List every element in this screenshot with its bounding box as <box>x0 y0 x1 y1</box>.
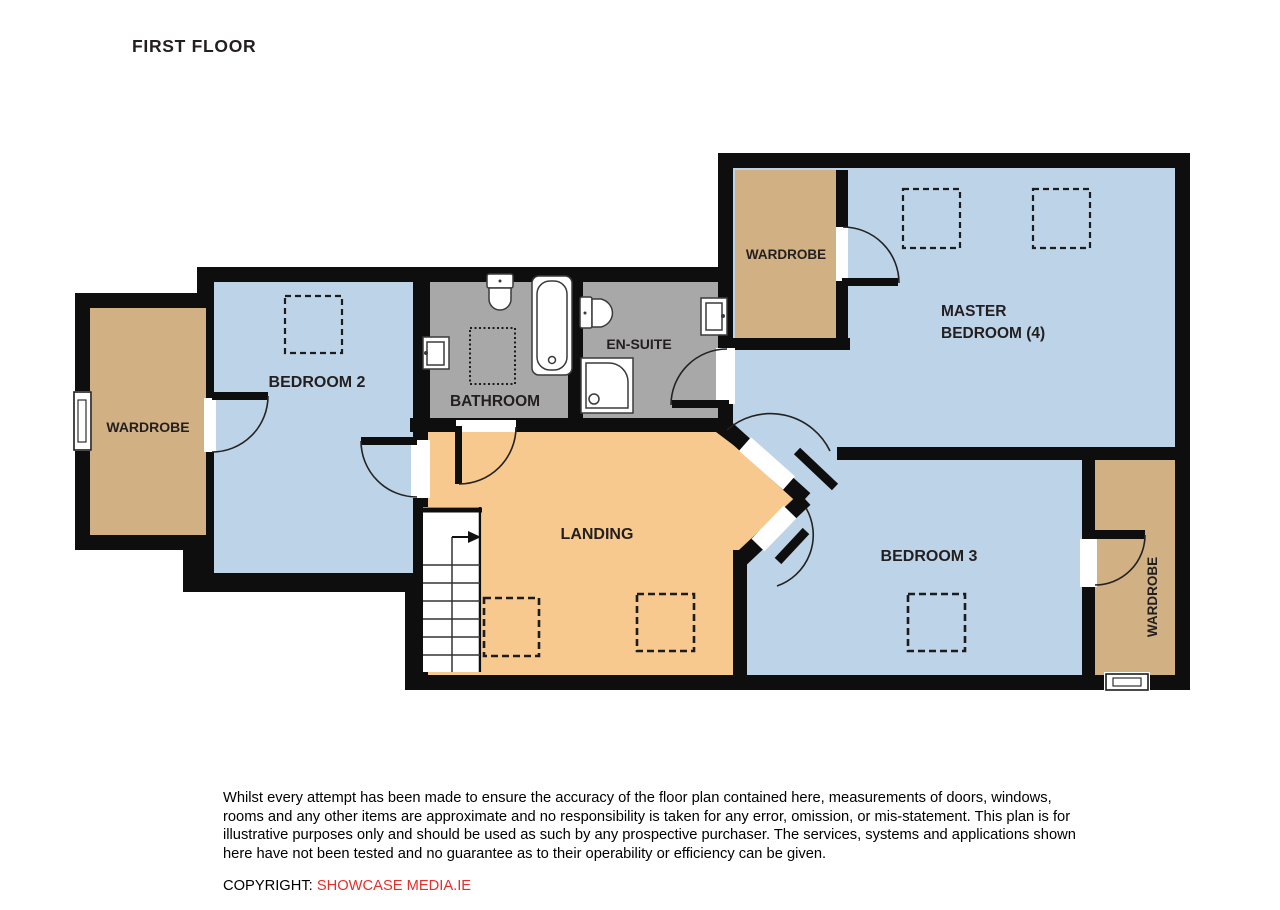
disclaimer-line: rooms and any other items are approximat… <box>223 808 1083 827</box>
copyright-prefix: COPYRIGHT: <box>223 878 317 894</box>
sink-icon <box>427 342 444 365</box>
floor-plan: WARDROBE BEDROOM 2 BATHROOM EN-SUITE WAR… <box>0 0 1280 905</box>
sink-icon <box>706 303 722 330</box>
toilet-icon <box>489 288 511 310</box>
wardrobe-left-label: WARDROBE <box>106 419 189 435</box>
window-icon <box>1113 678 1141 686</box>
disclaimer-line: here have not been tested and no guarant… <box>223 845 1083 864</box>
shower-drain <box>589 394 599 404</box>
floor-plan-svg: WARDROBE BEDROOM 2 BATHROOM EN-SUITE WAR… <box>0 0 1280 905</box>
wardrobe-right-label: WARDROBE <box>1145 557 1160 637</box>
master-bedroom-label-line2: BEDROOM (4) <box>941 325 1045 342</box>
ensuite-label: EN-SUITE <box>606 336 671 352</box>
room-wardrobe-right <box>1095 460 1175 675</box>
copyright-line: COPYRIGHT: SHOWCASE MEDIA.IE <box>223 878 471 894</box>
bedroom3-label: BEDROOM 3 <box>881 548 978 565</box>
master-bedroom-label-line1: MASTER <box>941 303 1006 320</box>
wardrobe-master-label: WARDROBE <box>746 247 826 262</box>
copyright-company: SHOWCASE MEDIA.IE <box>317 878 471 894</box>
disclaimer-text: Whilst every attempt has been made to en… <box>223 789 1083 864</box>
window-icon <box>78 400 86 442</box>
landing-label: LANDING <box>561 526 634 543</box>
disclaimer-line: Whilst every attempt has been made to en… <box>223 789 1083 808</box>
toilet-icon <box>592 299 612 327</box>
room-bedroom2 <box>214 282 413 573</box>
bedroom2-label: BEDROOM 2 <box>269 374 366 391</box>
bathroom-label: BATHROOM <box>450 393 540 410</box>
stairs <box>423 507 482 672</box>
bathtub-drain <box>549 357 556 364</box>
disclaimer-line: illustrative purposes only and should be… <box>223 826 1083 845</box>
